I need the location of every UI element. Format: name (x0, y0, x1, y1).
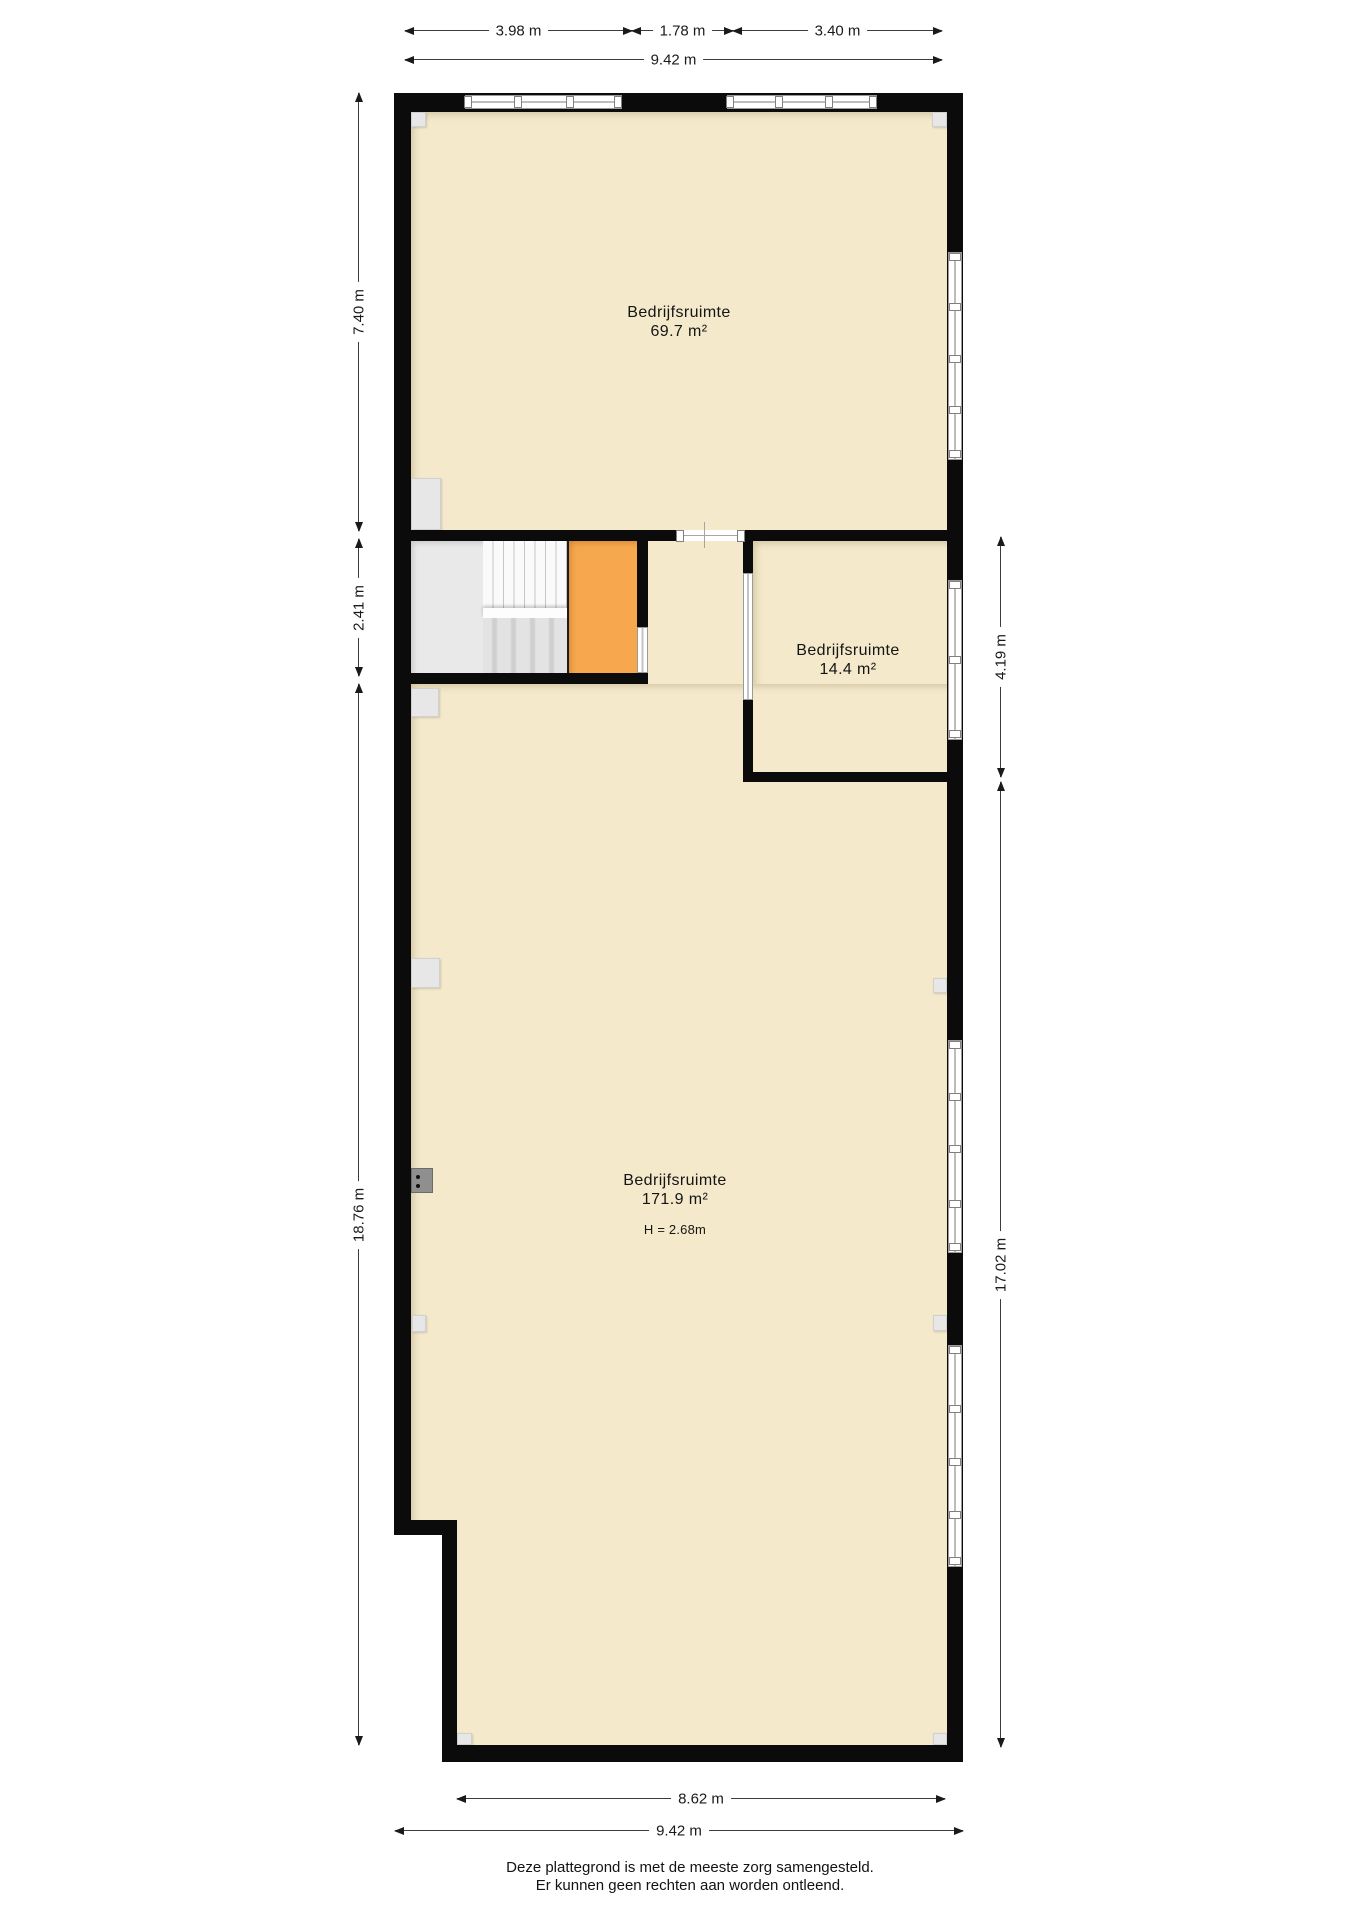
arrow-up-icon (355, 538, 363, 548)
window-mullion (614, 96, 622, 108)
glass-panel-room2 (743, 573, 753, 700)
window-mullion (949, 253, 961, 261)
dim-label: 8.62 m (671, 1791, 731, 1808)
wall-niche (411, 958, 440, 988)
window-mullion (676, 530, 684, 542)
wall-niche (412, 1315, 426, 1332)
wall-notch-vertical (442, 1535, 457, 1762)
arrow-left-icon (404, 56, 414, 64)
arrow-up-icon (997, 781, 1005, 791)
arrow-right-icon (933, 27, 943, 35)
window-mullion (949, 1093, 961, 1101)
window-mullion (949, 303, 961, 311)
window-mullion (949, 355, 961, 363)
arrow-right-icon (933, 56, 943, 64)
dim-label: 17.02 m (993, 1230, 1010, 1298)
arrow-down-icon (997, 1738, 1005, 1748)
arrow-right-icon (954, 1827, 964, 1835)
corridor (648, 541, 743, 684)
arrow-down-icon (997, 768, 1005, 778)
meter-cupboard-icon (411, 1168, 433, 1193)
window-right-4 (948, 1345, 962, 1567)
disclaimer: Deze plattegrond is met de meeste zorg s… (340, 1859, 1040, 1895)
wall-niche (411, 112, 426, 127)
dim-top-segment-3: 3.40 m (733, 30, 942, 31)
room-bedrijfsruimte-171-9-lower (457, 1520, 947, 1745)
wall-niche (932, 112, 947, 127)
window-mullion (949, 406, 961, 414)
window-mullion (775, 96, 783, 108)
staircase-lower-flight (483, 618, 567, 673)
window-mullion (949, 1458, 961, 1466)
window-mullion (949, 1145, 961, 1153)
room2-label: Bedrijfsruimte 14.4 m² (796, 641, 899, 679)
door-threshold-line (680, 535, 743, 536)
window-mullion (737, 530, 745, 542)
arrow-up-icon (355, 92, 363, 102)
dim-left-3: 18.76 m (358, 684, 359, 1745)
room3-area: 171.9 m² (623, 1190, 726, 1209)
window-mullion (949, 1557, 961, 1565)
window-top-1 (465, 95, 622, 109)
wall-lift-right (637, 530, 648, 627)
wall-niche (933, 978, 947, 993)
wall-niche (411, 478, 441, 530)
wall-room2-bottom (743, 772, 963, 782)
dim-label: 3.40 m (808, 23, 868, 40)
arrow-up-icon (355, 683, 363, 693)
wall-notch-jog (394, 1520, 457, 1535)
dim-top-segment-2: 1.78 m (632, 30, 733, 31)
wall-hall-bottom (411, 673, 648, 684)
window-mullion (566, 96, 574, 108)
floorplan-canvas: 3.98 m 1.78 m 3.40 m 9.42 m 7.40 m 2.41 … (0, 0, 1358, 1920)
dim-label: 4.19 m (993, 627, 1010, 687)
dim-label: 1.78 m (653, 23, 713, 40)
wall-bottom (442, 1745, 963, 1762)
window-mullion (514, 96, 522, 108)
dim-bottom-total: 9.42 m (395, 1830, 963, 1831)
dim-right-2: 17.02 m (1000, 782, 1001, 1747)
window-mullion (949, 1346, 961, 1354)
room-bedrijfsruimte-171-9 (411, 684, 947, 1520)
dim-label: 18.76 m (351, 1180, 368, 1248)
window-mullion (949, 1041, 961, 1049)
arrow-up-icon (997, 536, 1005, 546)
glass-panel-lift (637, 627, 648, 673)
window-mullion (949, 1243, 961, 1251)
panel-dot (416, 1175, 420, 1179)
window-mullion (869, 96, 877, 108)
room3-label: Bedrijfsruimte 171.9 m² H = 2.68m (623, 1171, 726, 1239)
arrow-right-icon (936, 1795, 946, 1803)
arrow-down-icon (355, 522, 363, 532)
wall-divider-right (743, 530, 947, 541)
disclaimer-line2: Er kunnen geen rechten aan worden ontlee… (340, 1877, 1040, 1895)
room1-area: 69.7 m² (627, 322, 730, 341)
window-mullion (464, 96, 472, 108)
arrow-left-icon (456, 1795, 466, 1803)
panel-dot (416, 1184, 420, 1188)
wall-niche (933, 1315, 947, 1331)
window-mullion (726, 96, 734, 108)
dim-label: 9.42 m (644, 52, 704, 69)
arrow-down-icon (355, 667, 363, 677)
dim-label: 9.42 m (649, 1823, 709, 1840)
arrow-left-icon (631, 27, 641, 35)
window-mullion (949, 450, 961, 458)
arrow-left-icon (394, 1827, 404, 1835)
wall-niche (411, 688, 439, 717)
room2-name: Bedrijfsruimte (796, 641, 899, 660)
room1-label: Bedrijfsruimte 69.7 m² (627, 303, 730, 341)
window-mullion (949, 1405, 961, 1413)
staircase-upper-flight (483, 541, 567, 611)
dim-top-segment-1: 3.98 m (405, 30, 632, 31)
window-mullion (825, 96, 833, 108)
room3-ceiling-height: H = 2.68m (623, 1220, 726, 1239)
dim-label: 7.40 m (351, 282, 368, 342)
wall-niche (933, 1733, 947, 1745)
wall-left (394, 93, 411, 1535)
dim-left-2: 2.41 m (358, 539, 359, 676)
room1-name: Bedrijfsruimte (627, 303, 730, 322)
dim-bottom-inner: 8.62 m (457, 1798, 945, 1799)
dim-left-1: 7.40 m (358, 93, 359, 531)
door-jamb-tick (704, 522, 705, 548)
dim-label: 2.41 m (351, 578, 368, 638)
dim-label: 3.98 m (489, 23, 549, 40)
window-mullion (949, 1200, 961, 1208)
window-top-2 (727, 95, 877, 109)
room2-area: 14.4 m² (796, 660, 899, 679)
window-mullion (949, 581, 961, 589)
room3-name: Bedrijfsruimte (623, 1171, 726, 1190)
arrow-left-icon (732, 27, 742, 35)
dim-right-1: 4.19 m (1000, 537, 1001, 777)
window-mullion (949, 656, 961, 664)
wall-niche (457, 1733, 472, 1745)
lift-shaft (567, 541, 639, 673)
window-mullion (949, 1511, 961, 1519)
disclaimer-line1: Deze plattegrond is met de meeste zorg s… (340, 1859, 1040, 1877)
arrow-down-icon (355, 1736, 363, 1746)
wall-room2-left-lower (743, 700, 753, 782)
dim-top-total: 9.42 m (405, 59, 942, 60)
arrow-left-icon (404, 27, 414, 35)
staircase-landing (483, 608, 567, 618)
window-mullion (949, 730, 961, 738)
